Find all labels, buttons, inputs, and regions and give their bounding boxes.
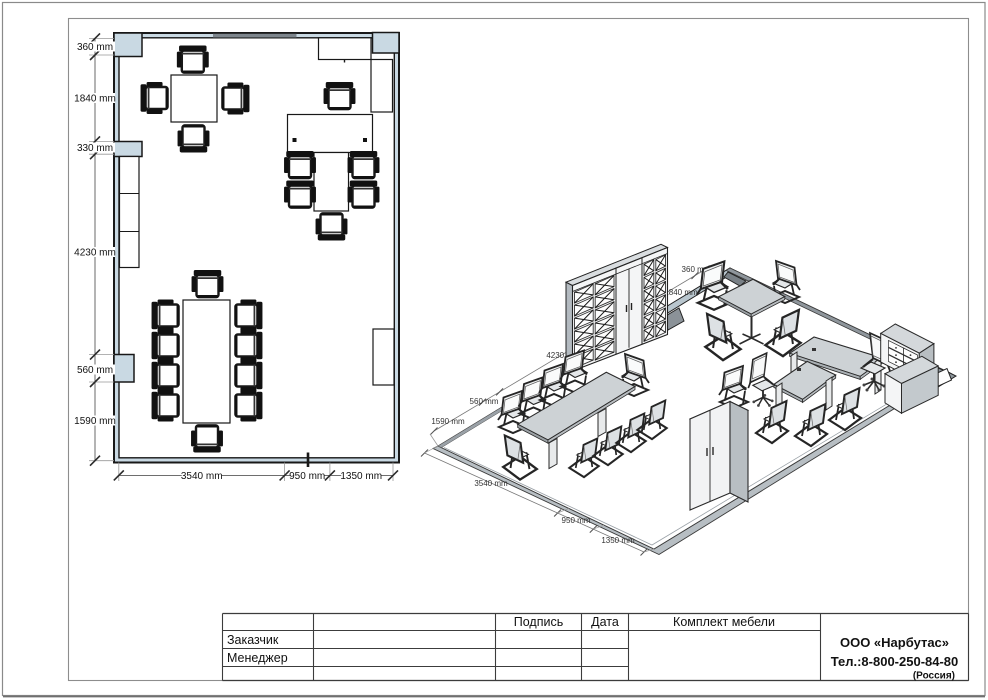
- svg-text:1590 mm: 1590 mm: [431, 417, 465, 426]
- svg-text:3540 mm: 3540 mm: [181, 471, 223, 482]
- svg-text:Заказчик: Заказчик: [227, 633, 279, 647]
- svg-text:1840 mm: 1840 mm: [664, 288, 698, 297]
- svg-text:1350 mm: 1350 mm: [340, 471, 382, 482]
- svg-text:950 mm: 950 mm: [289, 471, 325, 482]
- svg-text:(Россия): (Россия): [913, 671, 955, 682]
- svg-text:560 mm: 560 mm: [77, 365, 113, 376]
- svg-text:1350 mm: 1350 mm: [601, 536, 635, 545]
- svg-text:1590 mm: 1590 mm: [74, 416, 116, 427]
- svg-text:Менеджер: Менеджер: [227, 651, 288, 665]
- svg-text:1840 mm: 1840 mm: [74, 94, 116, 105]
- svg-text:Подпись: Подпись: [514, 615, 563, 629]
- svg-text:Комплект мебели: Комплект мебели: [673, 615, 775, 629]
- svg-text:ООО «Нарбутас»: ООО «Нарбутас»: [840, 635, 949, 650]
- svg-text:950 mm: 950 mm: [562, 516, 591, 525]
- svg-text:4230 mm: 4230 mm: [74, 248, 116, 259]
- svg-text:330 mm: 330 mm: [77, 143, 113, 154]
- svg-text:Дата: Дата: [591, 615, 619, 629]
- svg-text:360 mm: 360 mm: [77, 42, 113, 53]
- svg-text:560 mm: 560 mm: [470, 397, 499, 406]
- svg-text:Тел.:8-800-250-84-80: Тел.:8-800-250-84-80: [831, 654, 959, 669]
- svg-text:3540 mm: 3540 mm: [474, 479, 508, 488]
